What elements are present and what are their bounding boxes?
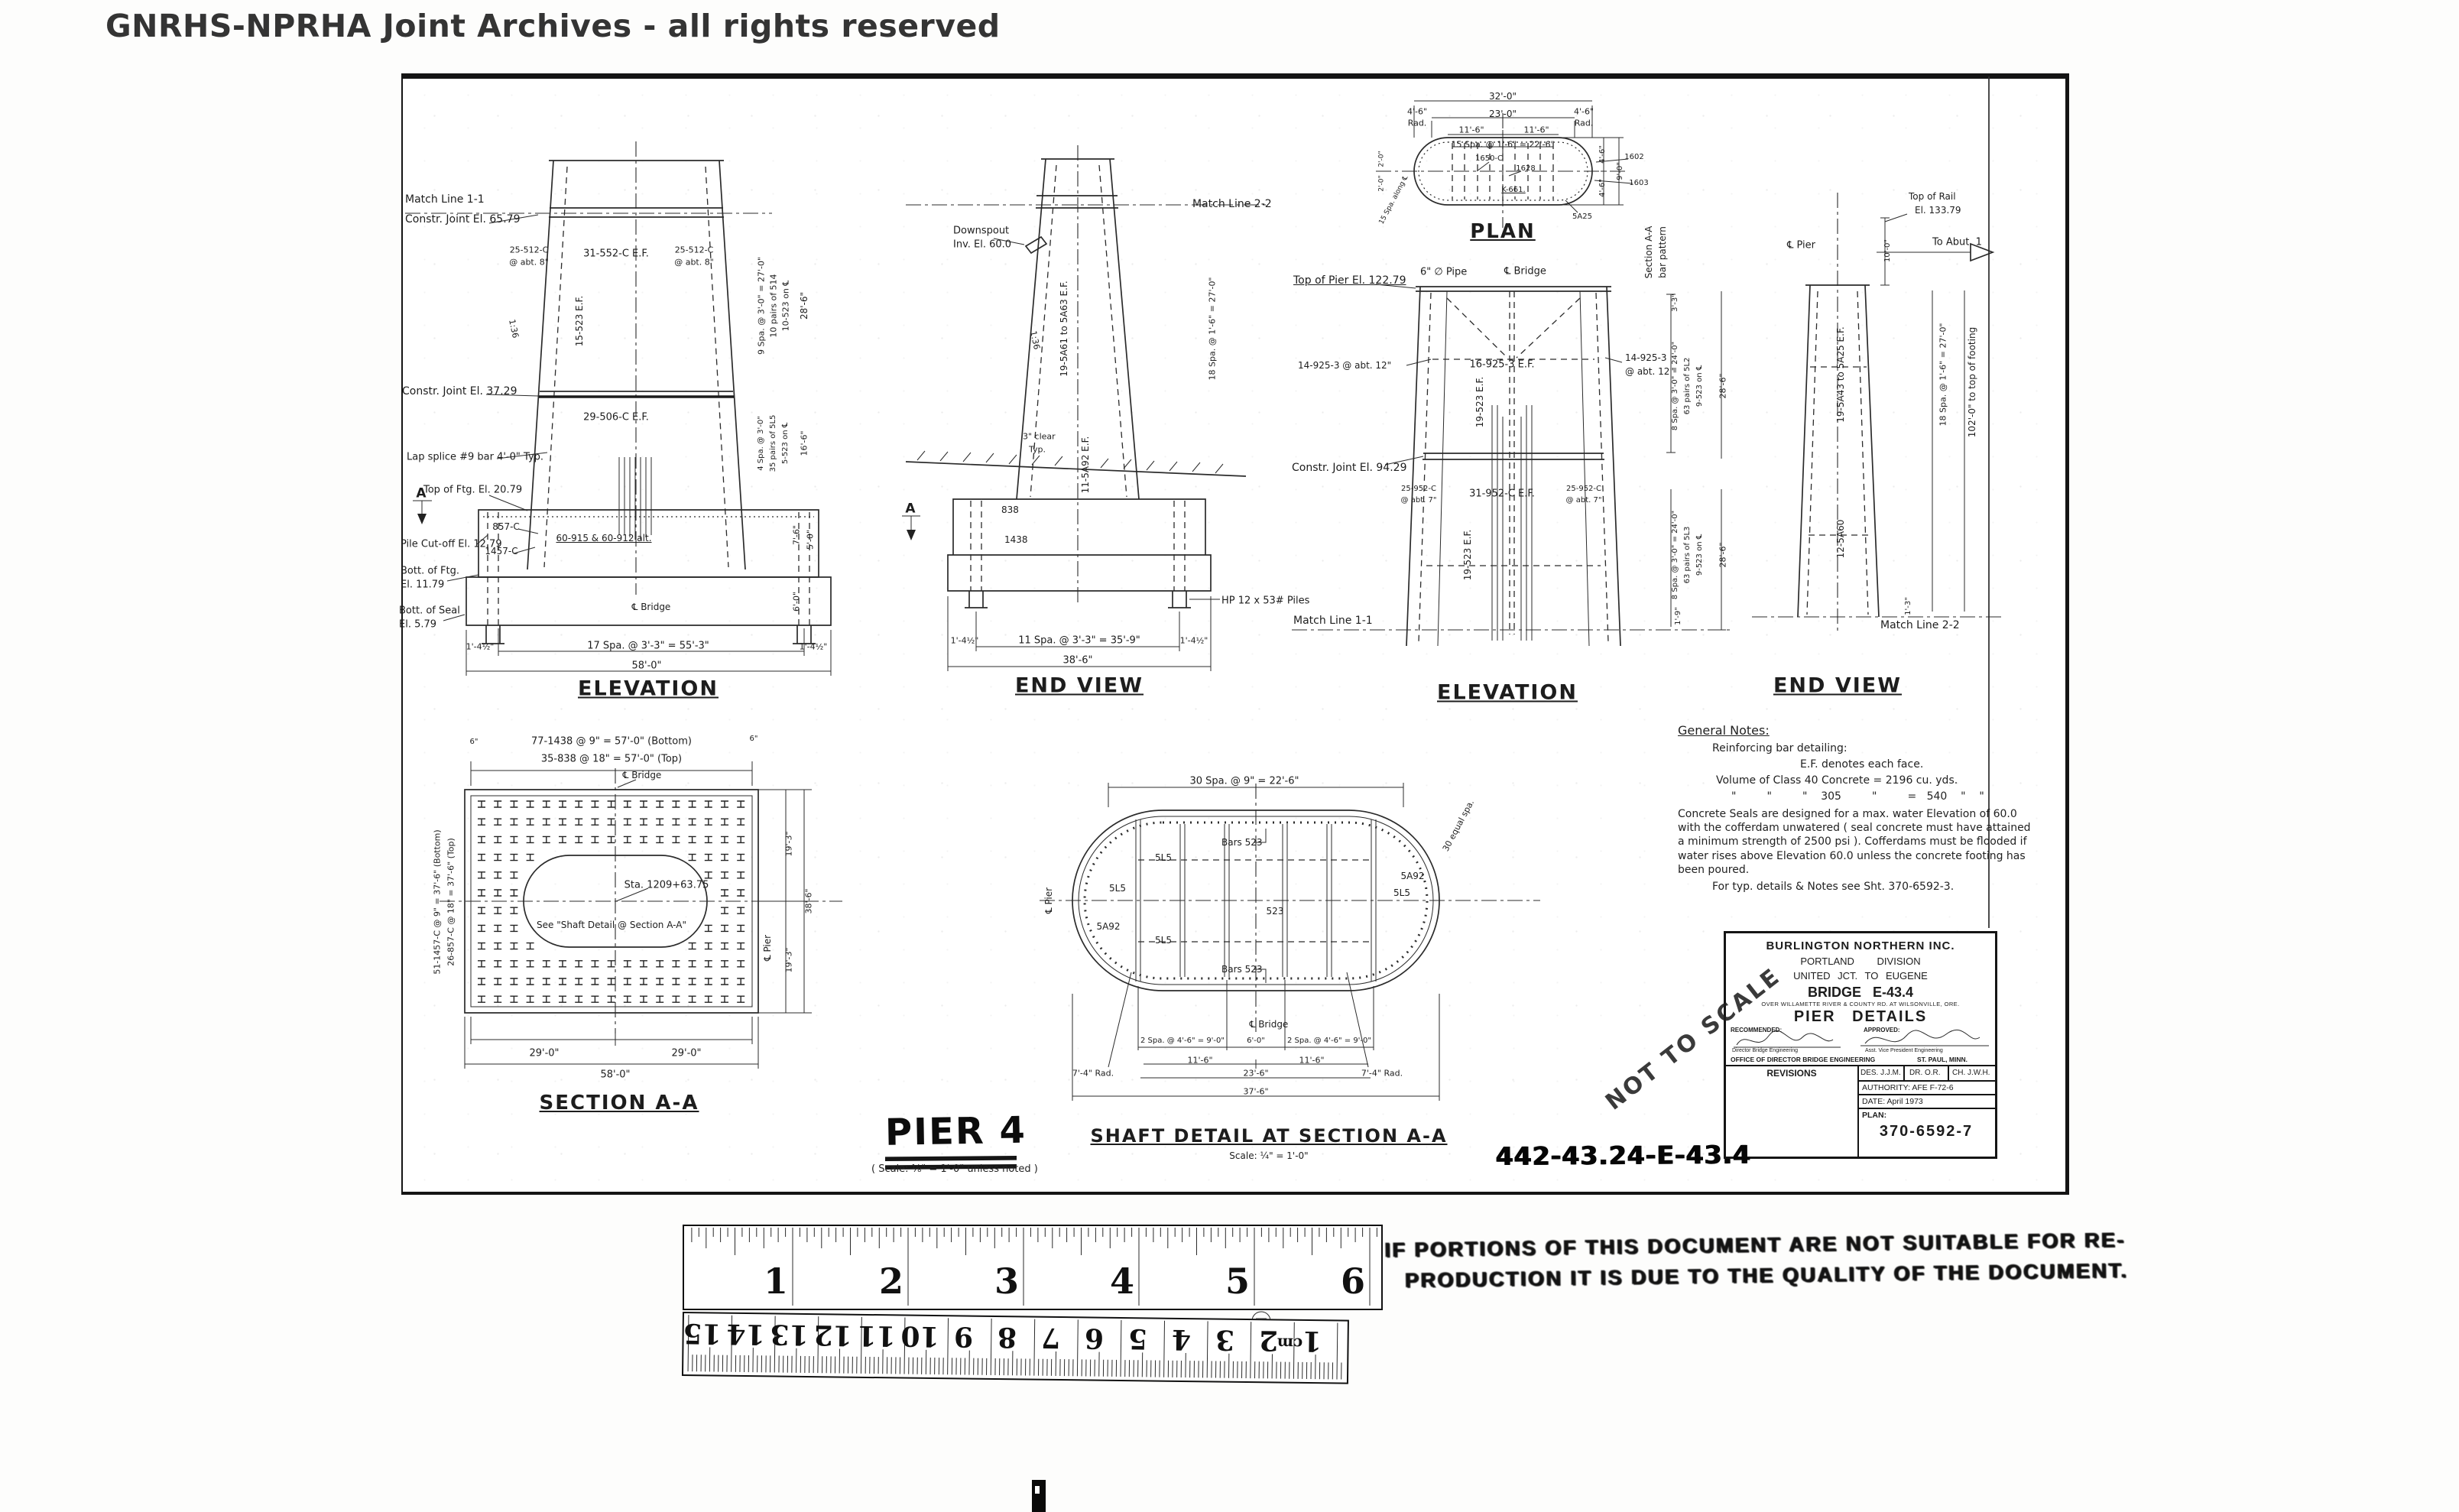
general-notes: General Notes: Reinforcing bar detailing… (1678, 723, 2037, 893)
cm-ruler-number: 2 (1259, 1324, 1279, 1356)
title-block-company: BURLINGTON NORTHERN INC. (1726, 939, 1995, 952)
scanned-drawing-page: GNRHS-NPRHA Joint Archives - all rights … (0, 0, 2459, 1512)
drawing-number-stamp: 442-43.24-E-43.4 (1495, 1140, 1751, 1171)
inch-ruler-number: 5 (1225, 1261, 1250, 1302)
scale-ruler-centimeters: 151413121110987654321cm (682, 1312, 1349, 1384)
scale-ruler-inches: 123456 (683, 1225, 1383, 1310)
cm-ruler-number: 10 (900, 1319, 939, 1352)
title-block-location: OVER WILLAMETTE RIVER & COUNTY RD. AT WI… (1726, 1001, 1995, 1007)
cm-ruler-number: 13 (770, 1318, 809, 1351)
office-label: OFFICE OF DIRECTOR BRIDGE ENGINEERING (1731, 1056, 1875, 1063)
view-elevation-right-geometry (1292, 284, 1734, 646)
note-ef-denotes: E.F. denotes each face. (1800, 758, 2037, 771)
pier-stamp-text: PIER 4 (885, 1108, 1054, 1154)
cm-ruler-number: 8 (998, 1321, 1017, 1353)
inch-ruler-number: 6 (1341, 1261, 1365, 1302)
cm-ruler-number: 4 (1172, 1323, 1192, 1355)
cm-ruler-unit: cm (1277, 1335, 1303, 1353)
cm-ruler-number: 1 (1302, 1325, 1322, 1357)
cm-ruler-number: 9 (954, 1320, 974, 1352)
revisions-header: REVISIONS (1726, 1068, 1857, 1079)
plan-number: 370-6592-7 (1857, 1123, 1995, 1140)
recommended-role: Director Bridge Engineering (1732, 1048, 1798, 1053)
designer-field: DES. J.J.M. (1860, 1069, 1901, 1077)
date-field: DATE: April 1973 (1862, 1097, 1923, 1106)
cm-ruler-number: 6 (1085, 1322, 1105, 1354)
pier-number-stamp: PIER 4 (885, 1110, 1053, 1170)
note-typ-details: For typ. details & Notes see Sht. 370-65… (1712, 881, 2037, 893)
view-end-view-right-geometry (1752, 193, 2001, 634)
view-shaft-detail-geometry (1040, 783, 1540, 1101)
inch-ruler-number: 1 (764, 1261, 788, 1302)
cm-ruler-number: 7 (1041, 1322, 1061, 1354)
cm-ruler-number: 12 (813, 1319, 852, 1351)
inch-ruler-number: 4 (1110, 1261, 1134, 1302)
drafter-field: DR. O.R. (1909, 1069, 1941, 1077)
view-elevation-left-geometry (405, 141, 831, 676)
view-section-aa-geometry (440, 761, 842, 1069)
checker-field: CH. J.W.H. (1952, 1069, 1990, 1077)
cm-ruler-number: 3 (1215, 1324, 1235, 1356)
general-notes-heading: General Notes: (1678, 723, 2037, 738)
authority-field: AUTHORITY: AFE F-72-6 (1862, 1083, 1954, 1092)
scan-artifact (1032, 1480, 1046, 1512)
view-plan-geometry (1376, 101, 1633, 228)
cm-ruler-number: 14 (726, 1318, 765, 1351)
inch-ruler-number: 2 (879, 1261, 903, 1302)
note-volume-class40: Volume of Class 40 Concrete = 2196 cu. y… (1716, 774, 2037, 787)
note-concrete-seals: Concrete Seals are designed for a max. w… (1678, 807, 2037, 877)
pier-scale-note: ( Scale: ⅛" = 1'-0" unless noted ) (871, 1163, 1038, 1175)
note-volume-class305: " " " 305 " = 540 " " (1731, 790, 2037, 803)
reproduction-quality-stamp: IF PORTIONS OF THIS DOCUMENT ARE NOT SUI… (1385, 1229, 2074, 1293)
view-end-view-left-geometry (902, 145, 1269, 671)
approved-role: Asst. Vice President Engineering (1865, 1048, 1943, 1053)
note-rebar-detailing: Reinforcing bar detailing: (1712, 742, 2037, 754)
plan-label: PLAN: (1862, 1111, 1886, 1120)
office-city: ST. PAUL, MINN. (1917, 1056, 1968, 1063)
pier-stamp-underline-1 (885, 1156, 1017, 1161)
cm-ruler-number: 15 (683, 1317, 722, 1350)
cm-ruler-number: 5 (1128, 1322, 1148, 1355)
inch-ruler-number: 3 (994, 1261, 1019, 1302)
cm-ruler-number: 11 (857, 1319, 896, 1352)
